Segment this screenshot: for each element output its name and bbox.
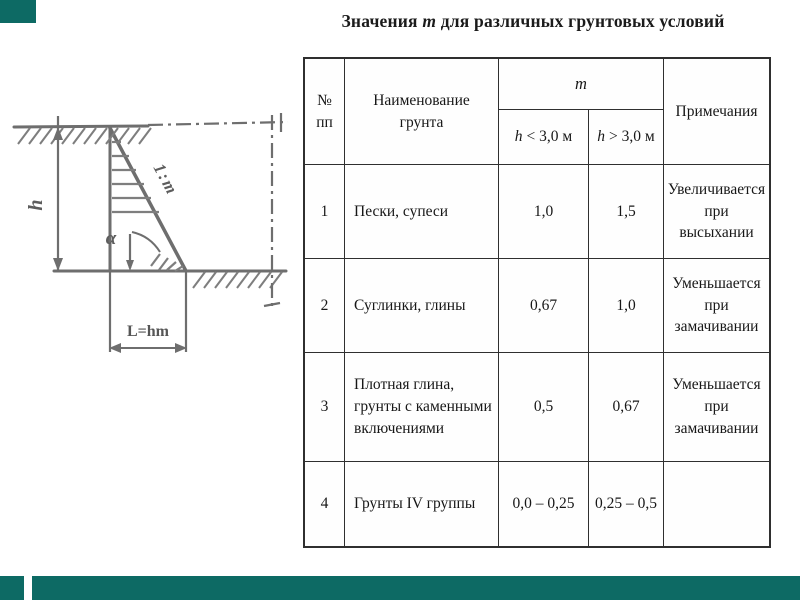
row-m-high: 1,5 bbox=[589, 165, 664, 259]
row-soil-name: Грунты IV группы bbox=[345, 462, 499, 546]
col-header-h-high: h> 3,0 м bbox=[589, 110, 664, 165]
row-m-high: 0,25 – 0,5 bbox=[589, 462, 664, 546]
col-header-h-low: h< 3,0 м bbox=[499, 110, 589, 165]
title-m-symbol: m bbox=[422, 11, 436, 31]
slide-title: Значения m для различных грунтовых услов… bbox=[298, 11, 768, 32]
row-m-low: 0,67 bbox=[499, 259, 589, 353]
slope-hatch bbox=[112, 142, 183, 271]
row-num: 4 bbox=[305, 462, 345, 546]
ground-hatch-bottom bbox=[193, 272, 282, 288]
h-low-condition: < 3,0 м bbox=[527, 126, 573, 148]
angle-marker bbox=[126, 232, 160, 271]
h-label: h bbox=[25, 199, 47, 210]
row-m-high: 0,67 bbox=[589, 353, 664, 462]
row-soil-name: Плотная глина, грунты с каменными включе… bbox=[345, 353, 499, 462]
axis-dashdot-lines bbox=[148, 115, 288, 310]
row-num: 1 bbox=[305, 165, 345, 259]
row-m-low: 1,0 bbox=[499, 165, 589, 259]
col-header-name: Наименование грунта bbox=[345, 59, 499, 165]
row-note bbox=[664, 462, 769, 546]
row-num: 3 bbox=[305, 353, 345, 462]
angle-label: α bbox=[106, 228, 117, 249]
row-note: Уменьшается при замачивании bbox=[664, 353, 769, 462]
base-dimension bbox=[109, 271, 187, 353]
accent-bottom-left bbox=[0, 576, 24, 600]
row-note: Увеличивается при высыхании bbox=[664, 165, 769, 259]
row-note: Уменьшается при замачивании bbox=[664, 259, 769, 353]
row-soil-name: Пески, супеси bbox=[345, 165, 499, 259]
slope-ratio-label: 1:m bbox=[150, 160, 182, 198]
h-dimension bbox=[53, 116, 63, 271]
row-m-high: 1,0 bbox=[589, 259, 664, 353]
accent-bottom-bar bbox=[32, 576, 800, 600]
row-m-low: 0,5 bbox=[499, 353, 589, 462]
row-soil-name: Суглинки, глины bbox=[345, 259, 499, 353]
col-header-num: № пп bbox=[305, 59, 345, 165]
ground-hatch-top bbox=[18, 128, 151, 144]
row-num: 2 bbox=[305, 259, 345, 353]
col-header-m: m bbox=[499, 59, 664, 110]
h-high-condition: > 3,0 м bbox=[609, 126, 655, 148]
col-header-notes: Примечания bbox=[664, 59, 769, 165]
row-m-low: 0,0 – 0,25 bbox=[499, 462, 589, 546]
slope-diagram: h 1:m α L=hm bbox=[8, 82, 298, 382]
title-prefix: Значения bbox=[341, 11, 417, 31]
h-symbol: h bbox=[597, 126, 605, 148]
accent-top-left bbox=[0, 0, 36, 23]
soil-conditions-table: № пп Наименование грунта m Примечания h<… bbox=[303, 57, 771, 548]
h-symbol: h bbox=[515, 126, 523, 148]
base-length-label: L=hm bbox=[127, 323, 170, 340]
title-suffix: для различных грунтовых условий bbox=[441, 11, 725, 31]
